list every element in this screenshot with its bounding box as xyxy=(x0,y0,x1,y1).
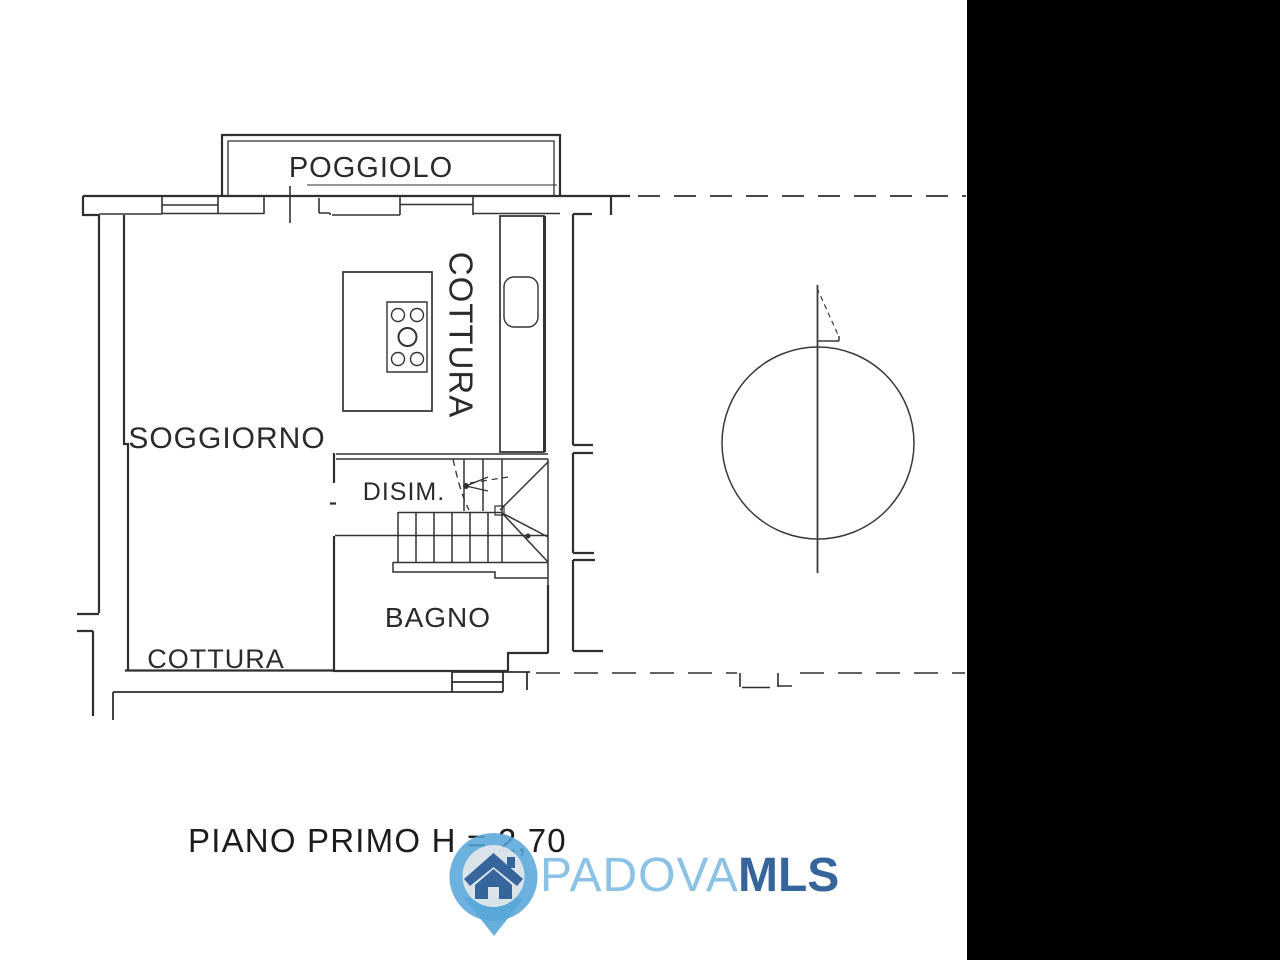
floorplan-drawing: POGGIOLO SOGGIORNO COTTURA DISIM. BAGNO … xyxy=(0,0,1280,960)
balcony-label: POGGIOLO xyxy=(289,152,453,184)
kitchenette-label: COTTURA xyxy=(147,644,285,674)
living-room-label: SOGGIORNO xyxy=(128,422,325,455)
brand-primary-text: PADOVA xyxy=(540,849,739,902)
hallway-label: DISIM. xyxy=(363,478,445,506)
bathroom-label: BAGNO xyxy=(385,602,491,633)
black-side-panel xyxy=(967,0,1280,960)
kitchen-column-label: COTTURA xyxy=(443,252,480,419)
floorplan-page: POGGIOLO SOGGIORNO COTTURA DISIM. BAGNO … xyxy=(0,0,1280,960)
brand-secondary-text: MLS xyxy=(738,849,839,902)
